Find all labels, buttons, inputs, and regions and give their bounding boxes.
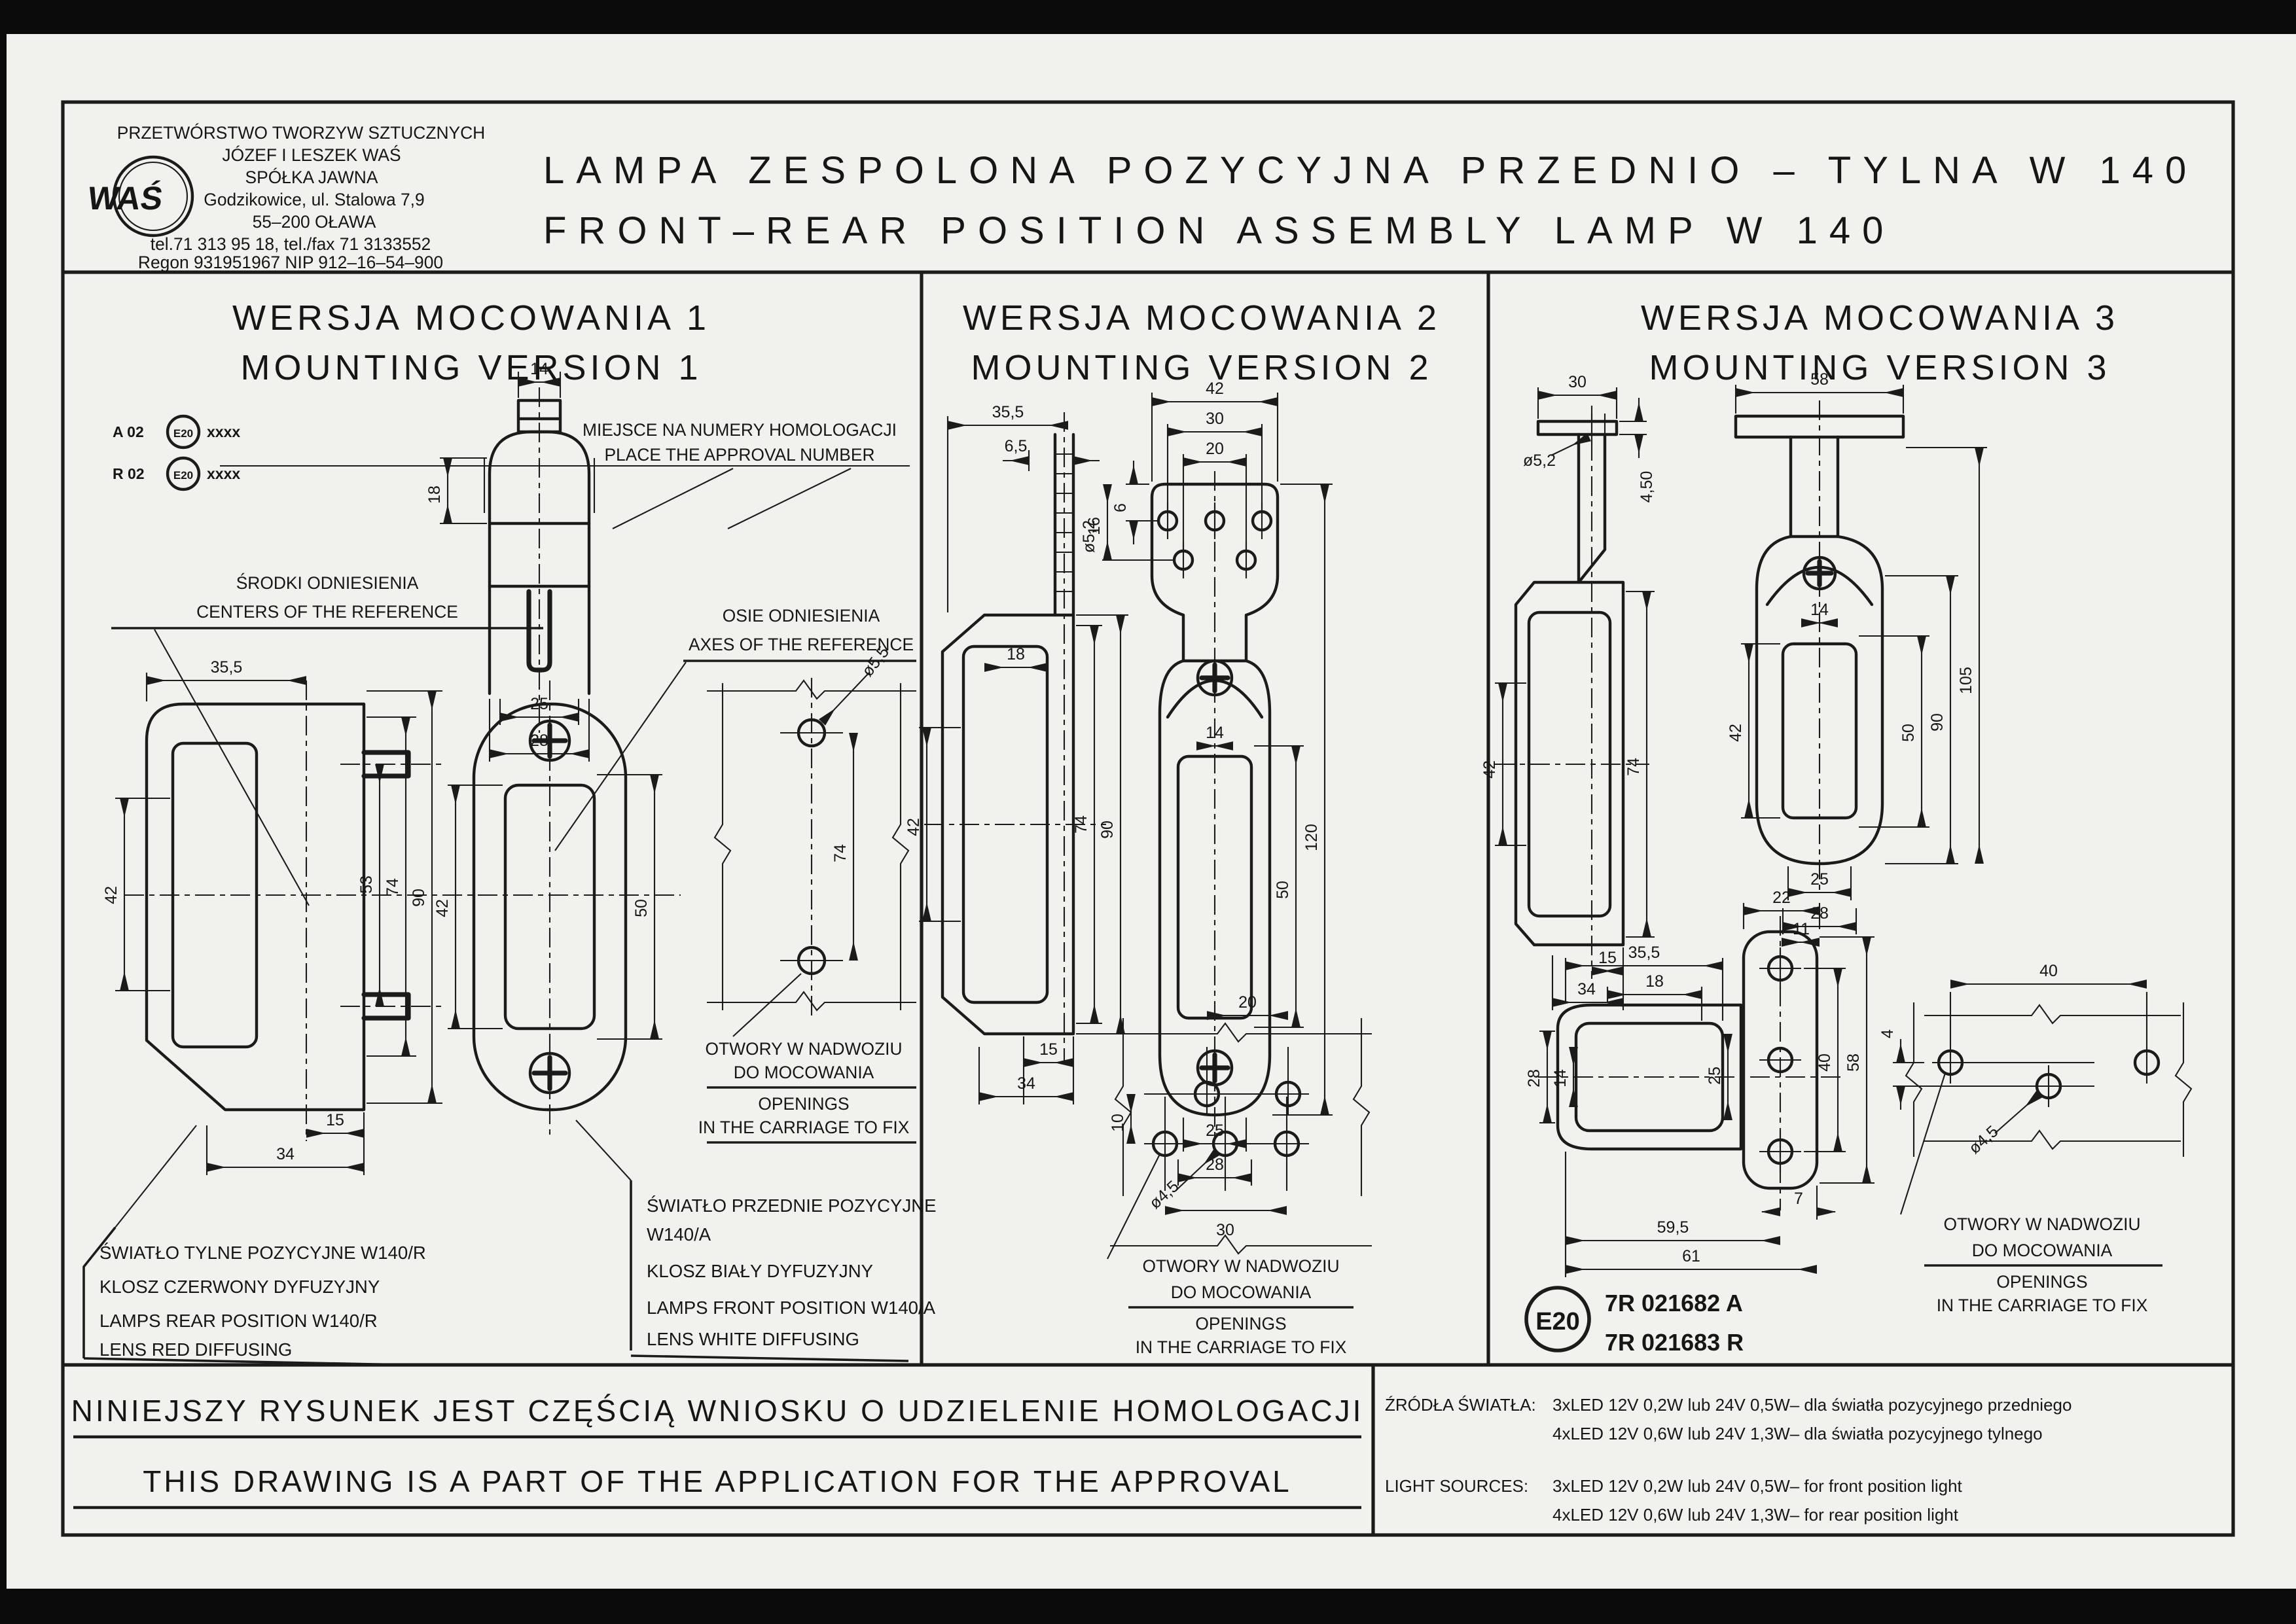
dim: 34 [1017, 1074, 1035, 1093]
dim: 20 [1238, 993, 1257, 1012]
dim: 74 [384, 878, 402, 896]
version-2: WERSJA MOCOWANIA 2 MOUNTING VERSION 2 35… [905, 298, 1441, 1357]
axes-label: OSIE ODNIESIENIA AXES OF THE REFERENCE [555, 606, 916, 851]
approval-number-r: 7R 021683 R [1605, 1329, 1744, 1356]
version-1: WERSJA MOCOWANIA 1 MOUNTING VERSION 1 A … [84, 298, 937, 1365]
dim: 59,5 [1657, 1218, 1689, 1237]
approval-mark-rear: R 02 E20 xxxx [113, 458, 240, 489]
centers-en: CENTERS OF THE REFERENCE [196, 602, 458, 622]
dim-diameter: ø4,5 [1146, 1177, 1183, 1212]
dim: 16 [1085, 517, 1103, 535]
company-line: 55–200 OŁAWA [253, 212, 376, 232]
dim: 50 [1899, 724, 1918, 742]
dim: 40 [1816, 1053, 1834, 1072]
approval-serial: xxxx [207, 465, 240, 482]
dim: 30 [1216, 1221, 1234, 1239]
dim: 53 [357, 875, 376, 894]
note-line: ŚWIATŁO PRZEDNIE POZYCYJNE [647, 1195, 937, 1216]
v3-side-view: 30 ø5,2 4,50 42 74 15 34 [1480, 373, 1656, 1010]
v2-side-view: 35,5 6,5 ø5,2 18 42 74 90 15 [905, 403, 1128, 1104]
dim: 58 [1844, 1053, 1863, 1072]
dim: 28 [1525, 1069, 1543, 1087]
version2-title-en: MOUNTING VERSION 2 [971, 348, 1432, 387]
dim: 25 [1706, 1067, 1724, 1085]
sources-line: 3xLED 12V 0,2W lub 24V 0,5W– dla światła… [1552, 1395, 2072, 1415]
dim: 14 [530, 360, 548, 378]
v3-bracket-view: 22 11 35,5 18 28 14 25 40 58 [1525, 889, 1874, 1277]
openings-pl2: DO MOCOWANIA [734, 1063, 874, 1082]
title-en: FRONT–REAR POSITION ASSEMBLY LAMP W 140 [543, 209, 1895, 252]
company-line: tel.71 313 95 18, tel./fax 71 3133552 [151, 234, 431, 254]
company-logo-text: WAŚ [86, 180, 166, 217]
dim: 50 [632, 899, 651, 917]
company-logo: WAŚ [86, 157, 192, 236]
openings-pl2: DO MOCOWANIA [1972, 1241, 2113, 1260]
title-block: LAMPA ZESPOLONA POZYCYJNA PRZEDNIO – TYL… [543, 149, 2198, 252]
dim: 74 [831, 844, 850, 862]
dim: 28 [1206, 1156, 1224, 1174]
dim: 18 [1007, 645, 1025, 663]
footer: NINIEJSZY RYSUNEK JEST CZĘŚCIĄ WNIOSKU O… [71, 1394, 2072, 1525]
dim: 14 [1551, 1069, 1570, 1087]
sources-line: 3xLED 12V 0,2W lub 24V 0,5W– for front p… [1552, 1476, 1963, 1496]
dim: 42 [1727, 724, 1745, 742]
dim: 34 [276, 1145, 295, 1163]
note-rear-lamp: ŚWIATŁO TYLNE POZYCYJNE W140/R KLOSZ CZE… [84, 1125, 426, 1365]
light-sources: ŹRÓDŁA ŚWIATŁA: 3xLED 12V 0,2W lub 24V 0… [1385, 1395, 2072, 1525]
dim: 6,5 [1005, 437, 1028, 455]
dim: 35,5 [211, 658, 243, 677]
v2-hole-pattern: 20 10 30 ø4,5 OTWORY W NADWOZIU DO MOCOW… [1107, 993, 1372, 1357]
dim: 90 [1098, 821, 1117, 839]
approval-number-a: 7R 021682 A [1605, 1290, 1743, 1316]
openings-en1: OPENINGS [758, 1094, 849, 1114]
note-line: LAMPS FRONT POSITION W140/A [647, 1297, 936, 1318]
dim: 18 [425, 485, 444, 504]
dim: 30 [1206, 410, 1224, 428]
technical-drawing-sheet: WAŚ PRZETWÓRSTWO TWORZYW SZTUCZNYCH JÓZE… [0, 0, 2296, 1624]
dim: 90 [1928, 713, 1946, 732]
openings-en2: IN THE CARRIAGE TO FIX [1136, 1337, 1347, 1357]
sources-label-pl: ŹRÓDŁA ŚWIATŁA: [1385, 1395, 1536, 1415]
approval-numbers: E20 7R 021682 A 7R 021683 R [1526, 1288, 1744, 1356]
approval-place-label: MIEJSCE NA NUMERY HOMOLOGACJI PLACE THE … [583, 420, 897, 529]
openings-en2: IN THE CARRIAGE TO FIX [698, 1118, 910, 1137]
dim: 105 [1957, 667, 1975, 694]
company-line: Godzikowice, ul. Stalowa 7,9 [204, 190, 424, 209]
company-block: WAŚ PRZETWÓRSTWO TWORZYW SZTUCZNYCH JÓZE… [86, 123, 486, 272]
centers-pl: ŚRODKI ODNIESIENIA [236, 573, 419, 593]
dim: 61 [1682, 1247, 1700, 1265]
openings-pl1: OTWORY W NADWOZIU [1142, 1256, 1339, 1276]
approval-serial: xxxx [207, 423, 240, 440]
e-mark: E20 [173, 469, 193, 482]
openings-en2: IN THE CARRIAGE TO FIX [1937, 1296, 2148, 1315]
dim: 40 [2039, 962, 2058, 980]
note-line: KLOSZ CZERWONY DYFUZYJNY [99, 1277, 380, 1297]
version3-title-pl: WERSJA MOCOWANIA 3 [1641, 298, 2119, 338]
dim: 14 [1810, 601, 1829, 619]
approval-mark-front: A 02 E20 xxxx [113, 416, 240, 448]
dim: 22 [1772, 889, 1791, 907]
company-line: PRZETWÓRSTWO TWORZYW SZTUCZNYCH [117, 123, 485, 143]
dim: 18 [1645, 972, 1664, 991]
approval-mark-row2: R 02 [113, 465, 145, 482]
e20-circle-text: E20 [1535, 1308, 1580, 1335]
company-line: JÓZEF I LESZEK WAŚ [222, 145, 401, 165]
v1-hole-pattern: 74 ø5,5 OTWORY W NADWOZIU DO MOCOWANIA O… [698, 643, 916, 1142]
dim: 50 [1274, 881, 1292, 899]
sources-line: 4xLED 12V 0,6W lub 24V 1,3W– for rear po… [1552, 1505, 1959, 1525]
dim: 34 [1577, 980, 1596, 998]
approval-place-en: PLACE THE APPROVAL NUMBER [604, 445, 874, 465]
company-line: Regon 931951967 NIP 912–16–54–900 [138, 253, 443, 272]
axes-pl: OSIE ODNIESIENIA [723, 606, 880, 626]
openings-pl1: OTWORY W NADWOZIU [1943, 1214, 2140, 1234]
version1-title-pl: WERSJA MOCOWANIA 1 [232, 298, 710, 338]
dim: 6 [1111, 503, 1130, 512]
dim: 42 [1206, 380, 1224, 398]
note-line: LAMPS REAR POSITION W140/R [99, 1311, 378, 1331]
version-3: WERSJA MOCOWANIA 3 MOUNTING VERSION 3 30… [1480, 298, 2191, 1356]
version3-title-en: MOUNTING VERSION 3 [1649, 348, 2110, 387]
openings-en1: OPENINGS [1996, 1272, 2087, 1292]
company-line: SPÓŁKA JAWNA [245, 168, 378, 187]
note-line: LENS WHITE DIFFUSING [647, 1329, 859, 1349]
v3-front-view: 58 14 42 50 90 105 25 28 [1727, 370, 1987, 934]
e-mark: E20 [173, 427, 193, 440]
note-line: W140/A [647, 1224, 711, 1244]
note-front-lamp: ŚWIATŁO PRZEDNIE POZYCYJNE W140/A KLOSZ … [576, 1120, 937, 1361]
dim: 42 [433, 899, 452, 917]
approval-mark-row1: A 02 [113, 423, 144, 440]
dim: 120 [1302, 824, 1321, 851]
dim: 90 [410, 889, 428, 907]
openings-label-v1: OTWORY W NADWOZIU DO MOCOWANIA OPENINGS … [698, 1039, 916, 1142]
dim: 35,5 [1628, 944, 1660, 962]
dim: 7 [1794, 1190, 1803, 1208]
title-pl: LAMPA ZESPOLONA POZYCYJNA PRZEDNIO – TYL… [543, 149, 2198, 192]
dim: 58 [1810, 370, 1829, 389]
note-line: ŚWIATŁO TYLNE POZYCYJNE W140/R [99, 1242, 426, 1263]
v1-front-view: 42 50 [433, 680, 662, 1139]
dim: 4 [1878, 1029, 1897, 1038]
statement-pl: NINIEJSZY RYSUNEK JEST CZĘŚCIĄ WNIOSKU O… [71, 1394, 1364, 1428]
dim: 4,50 [1638, 471, 1656, 503]
openings-label-v3: OTWORY W NADWOZIU DO MOCOWANIA OPENINGS … [1924, 1214, 2162, 1315]
dim: 74 [1072, 815, 1090, 834]
version1-title-en: MOUNTING VERSION 1 [240, 348, 702, 387]
drawing-canvas: WAŚ PRZETWÓRSTWO TWORZYW SZTUCZNYCH JÓZE… [0, 0, 2296, 1624]
dim: 15 [326, 1111, 344, 1129]
dim: 25 [1810, 870, 1829, 889]
dim: 14 [1206, 724, 1224, 742]
openings-pl2: DO MOCOWANIA [1171, 1282, 1312, 1302]
dim: 74 [1624, 758, 1643, 776]
sources-label-en: LIGHT SOURCES: [1385, 1476, 1528, 1496]
dim: 42 [102, 886, 120, 904]
note-line: KLOSZ BIAŁY DYFUZYJNY [647, 1261, 873, 1281]
dim: 42 [905, 818, 923, 836]
openings-en1: OPENINGS [1195, 1314, 1286, 1333]
v3-hole-pattern: 40 4 ø4,5 OTWORY W NADWOZIU DO MOCOWANIA… [1878, 962, 2191, 1315]
dim: 30 [1568, 373, 1587, 391]
approval-place-pl: MIEJSCE NA NUMERY HOMOLOGACJI [583, 420, 897, 440]
dim: 35,5 [992, 403, 1024, 421]
dim-diameter: ø5,2 [1523, 451, 1556, 470]
dim: 15 [1598, 949, 1617, 967]
dim: 15 [1039, 1040, 1058, 1059]
statement-en: THIS DRAWING IS A PART OF THE APPLICATIO… [143, 1464, 1291, 1498]
dim: 20 [1206, 440, 1224, 458]
v2-front-view: 42 30 20 6 16 14 50 120 [1085, 380, 1333, 1186]
openings-pl1: OTWORY W NADWOZIU [705, 1039, 902, 1059]
sources-line: 4xLED 12V 0,6W lub 24V 1,3W– dla światła… [1552, 1424, 2043, 1443]
dim: 11 [1793, 920, 1810, 938]
note-line: LENS RED DIFFUSING [99, 1339, 292, 1360]
centers-label: ŚRODKI ODNIESIENIA CENTERS OF THE REFERE… [111, 573, 543, 906]
dim: 10 [1109, 1114, 1127, 1132]
dim-diameter: ø4,5 [1965, 1122, 2002, 1157]
version2-title-pl: WERSJA MOCOWANIA 2 [963, 298, 1441, 338]
openings-label-v2: OTWORY W NADWOZIU DO MOCOWANIA OPENINGS … [1128, 1256, 1354, 1357]
dim: 42 [1480, 760, 1499, 779]
